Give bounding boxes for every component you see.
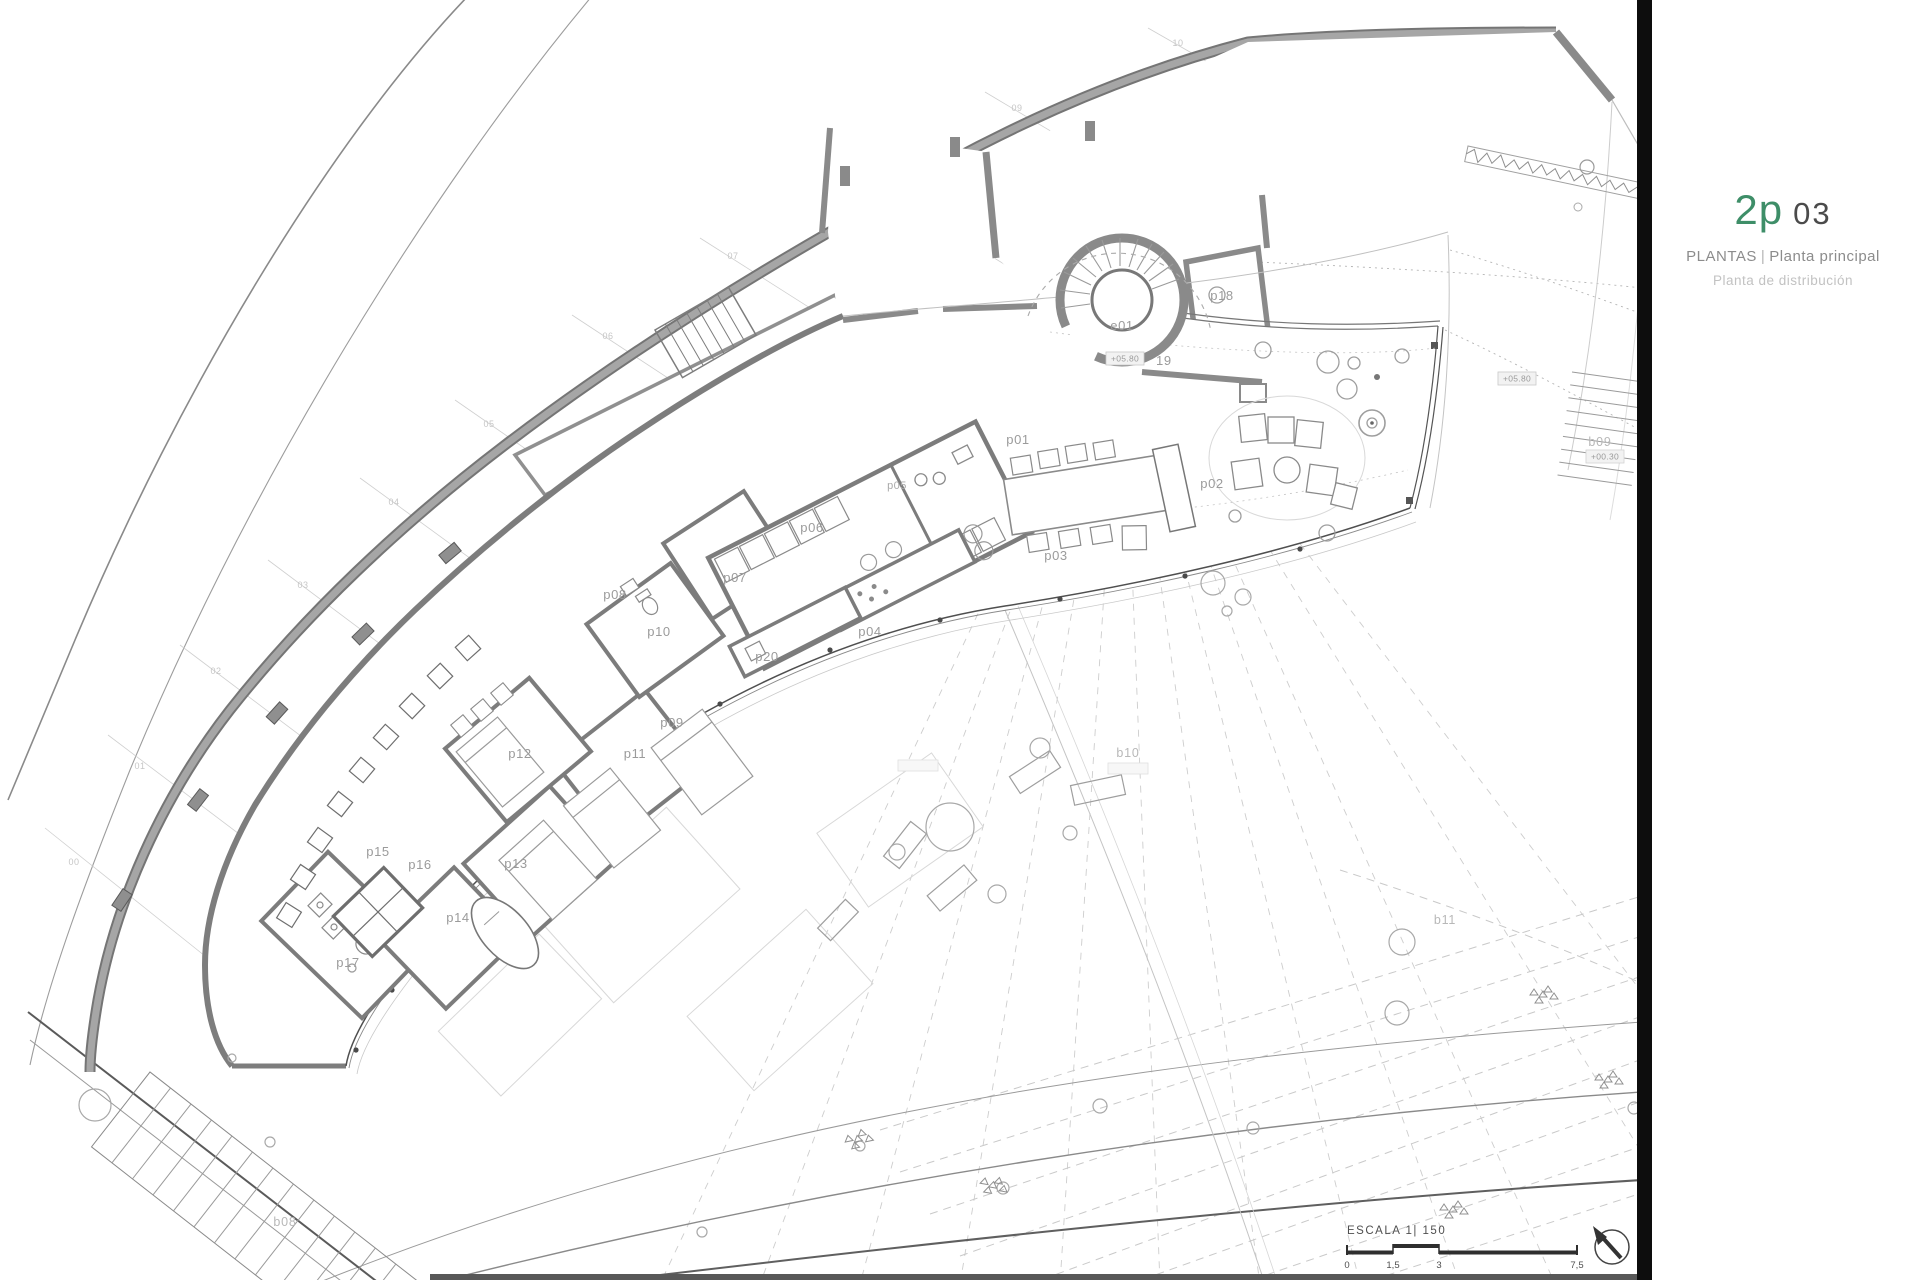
room-label-p12: p12 [508, 746, 532, 761]
sheet-subtitle: Planta de distribución [1660, 273, 1906, 288]
sheet-bottom-edge [430, 1274, 1637, 1280]
room-label-p18: p18 [1210, 288, 1234, 303]
zone-label-b09: b09 [1588, 435, 1611, 449]
sheet-category: PLANTAS [1686, 248, 1757, 265]
room-label-p11: p11 [624, 746, 647, 761]
room-label-e01: e01 [1110, 318, 1134, 333]
zone-label-b10: b10 [1116, 746, 1139, 760]
sheet-separator: | [1757, 248, 1769, 265]
sheet-category-title: PLANTAS|Planta principal [1660, 248, 1906, 265]
scale-tick-7-5: 7,5 [1570, 1260, 1583, 1271]
room-label-p09: p09 [660, 715, 684, 730]
zone-label-b08: b08 [273, 1215, 296, 1229]
sheet-code: 2p03 [1660, 186, 1906, 234]
contour-dashed-lines [880, 870, 1637, 1280]
scale-tick-0: 0 [1344, 1260, 1349, 1271]
room-label-p20: p20 [755, 649, 779, 664]
room-label-p10: p10 [647, 624, 671, 639]
grid-label-10: 10 [1172, 38, 1183, 48]
terrace-steps-b09 [1430, 235, 1637, 508]
grid-label-02: 02 [210, 666, 221, 676]
sheet-code-number: 03 [1793, 196, 1831, 231]
grid-label-05: 05 [483, 419, 494, 429]
elevation-terrace-lower: +00.30 [1591, 452, 1619, 462]
elevation-stair: +05.80 [1111, 354, 1139, 364]
scale-tick-3: 3 [1436, 1260, 1441, 1271]
room-label-p03: p03 [1044, 548, 1068, 563]
room-label-p05: p05 [887, 480, 907, 492]
room-label-p04: p04 [858, 624, 882, 639]
grid-label-00: 00 [68, 857, 79, 867]
drawing-sheet: 00 01 02 03 04 05 06 07 08 09 10 [0, 0, 1920, 1280]
room-label-p13: p13 [504, 856, 528, 871]
room-label-p06: p06 [800, 520, 824, 535]
north-arrow-icon [1593, 1226, 1629, 1264]
room-label-p02: p02 [1200, 476, 1224, 491]
sheet-divider-bar [1637, 0, 1652, 1280]
scale-tick-1-5: 1,5 [1386, 1260, 1399, 1271]
room-label-p14: p14 [446, 910, 470, 925]
grid-label-06: 06 [602, 331, 613, 341]
scale-bar: ESCALA 1| 150 0 1,5 3 7,5 [1344, 1225, 1583, 1271]
room-label-p08: p08 [603, 587, 627, 602]
grid-label-03: 03 [297, 580, 308, 590]
grid-label-01: 01 [134, 761, 145, 771]
room-label-p01: p01 [1006, 432, 1030, 447]
zone-label-b11: b11 [1434, 913, 1456, 927]
room-label-p17: p17 [336, 955, 360, 970]
grid-label-04: 04 [388, 497, 399, 507]
scale-label: ESCALA 1| 150 [1347, 1225, 1446, 1237]
room-label-p15: p15 [366, 844, 390, 859]
sheet-title: Planta principal [1769, 248, 1880, 265]
floor-plan-drawing: 00 01 02 03 04 05 06 07 08 09 10 [0, 0, 1637, 1280]
room-label-p19: 19 [1156, 353, 1172, 368]
grid-label-09: 09 [1011, 103, 1022, 113]
sheet-code-main: 2p [1734, 186, 1783, 233]
elevation-terrace-upper: +05.80 [1503, 374, 1531, 384]
room-label-p16: p16 [408, 857, 432, 872]
grid-label-07: 07 [727, 251, 738, 261]
sun-loungers [818, 751, 1126, 941]
room-label-p07: p07 [723, 570, 747, 585]
title-block: 2p03 PLANTAS|Planta principal Planta de … [1652, 0, 1920, 1280]
